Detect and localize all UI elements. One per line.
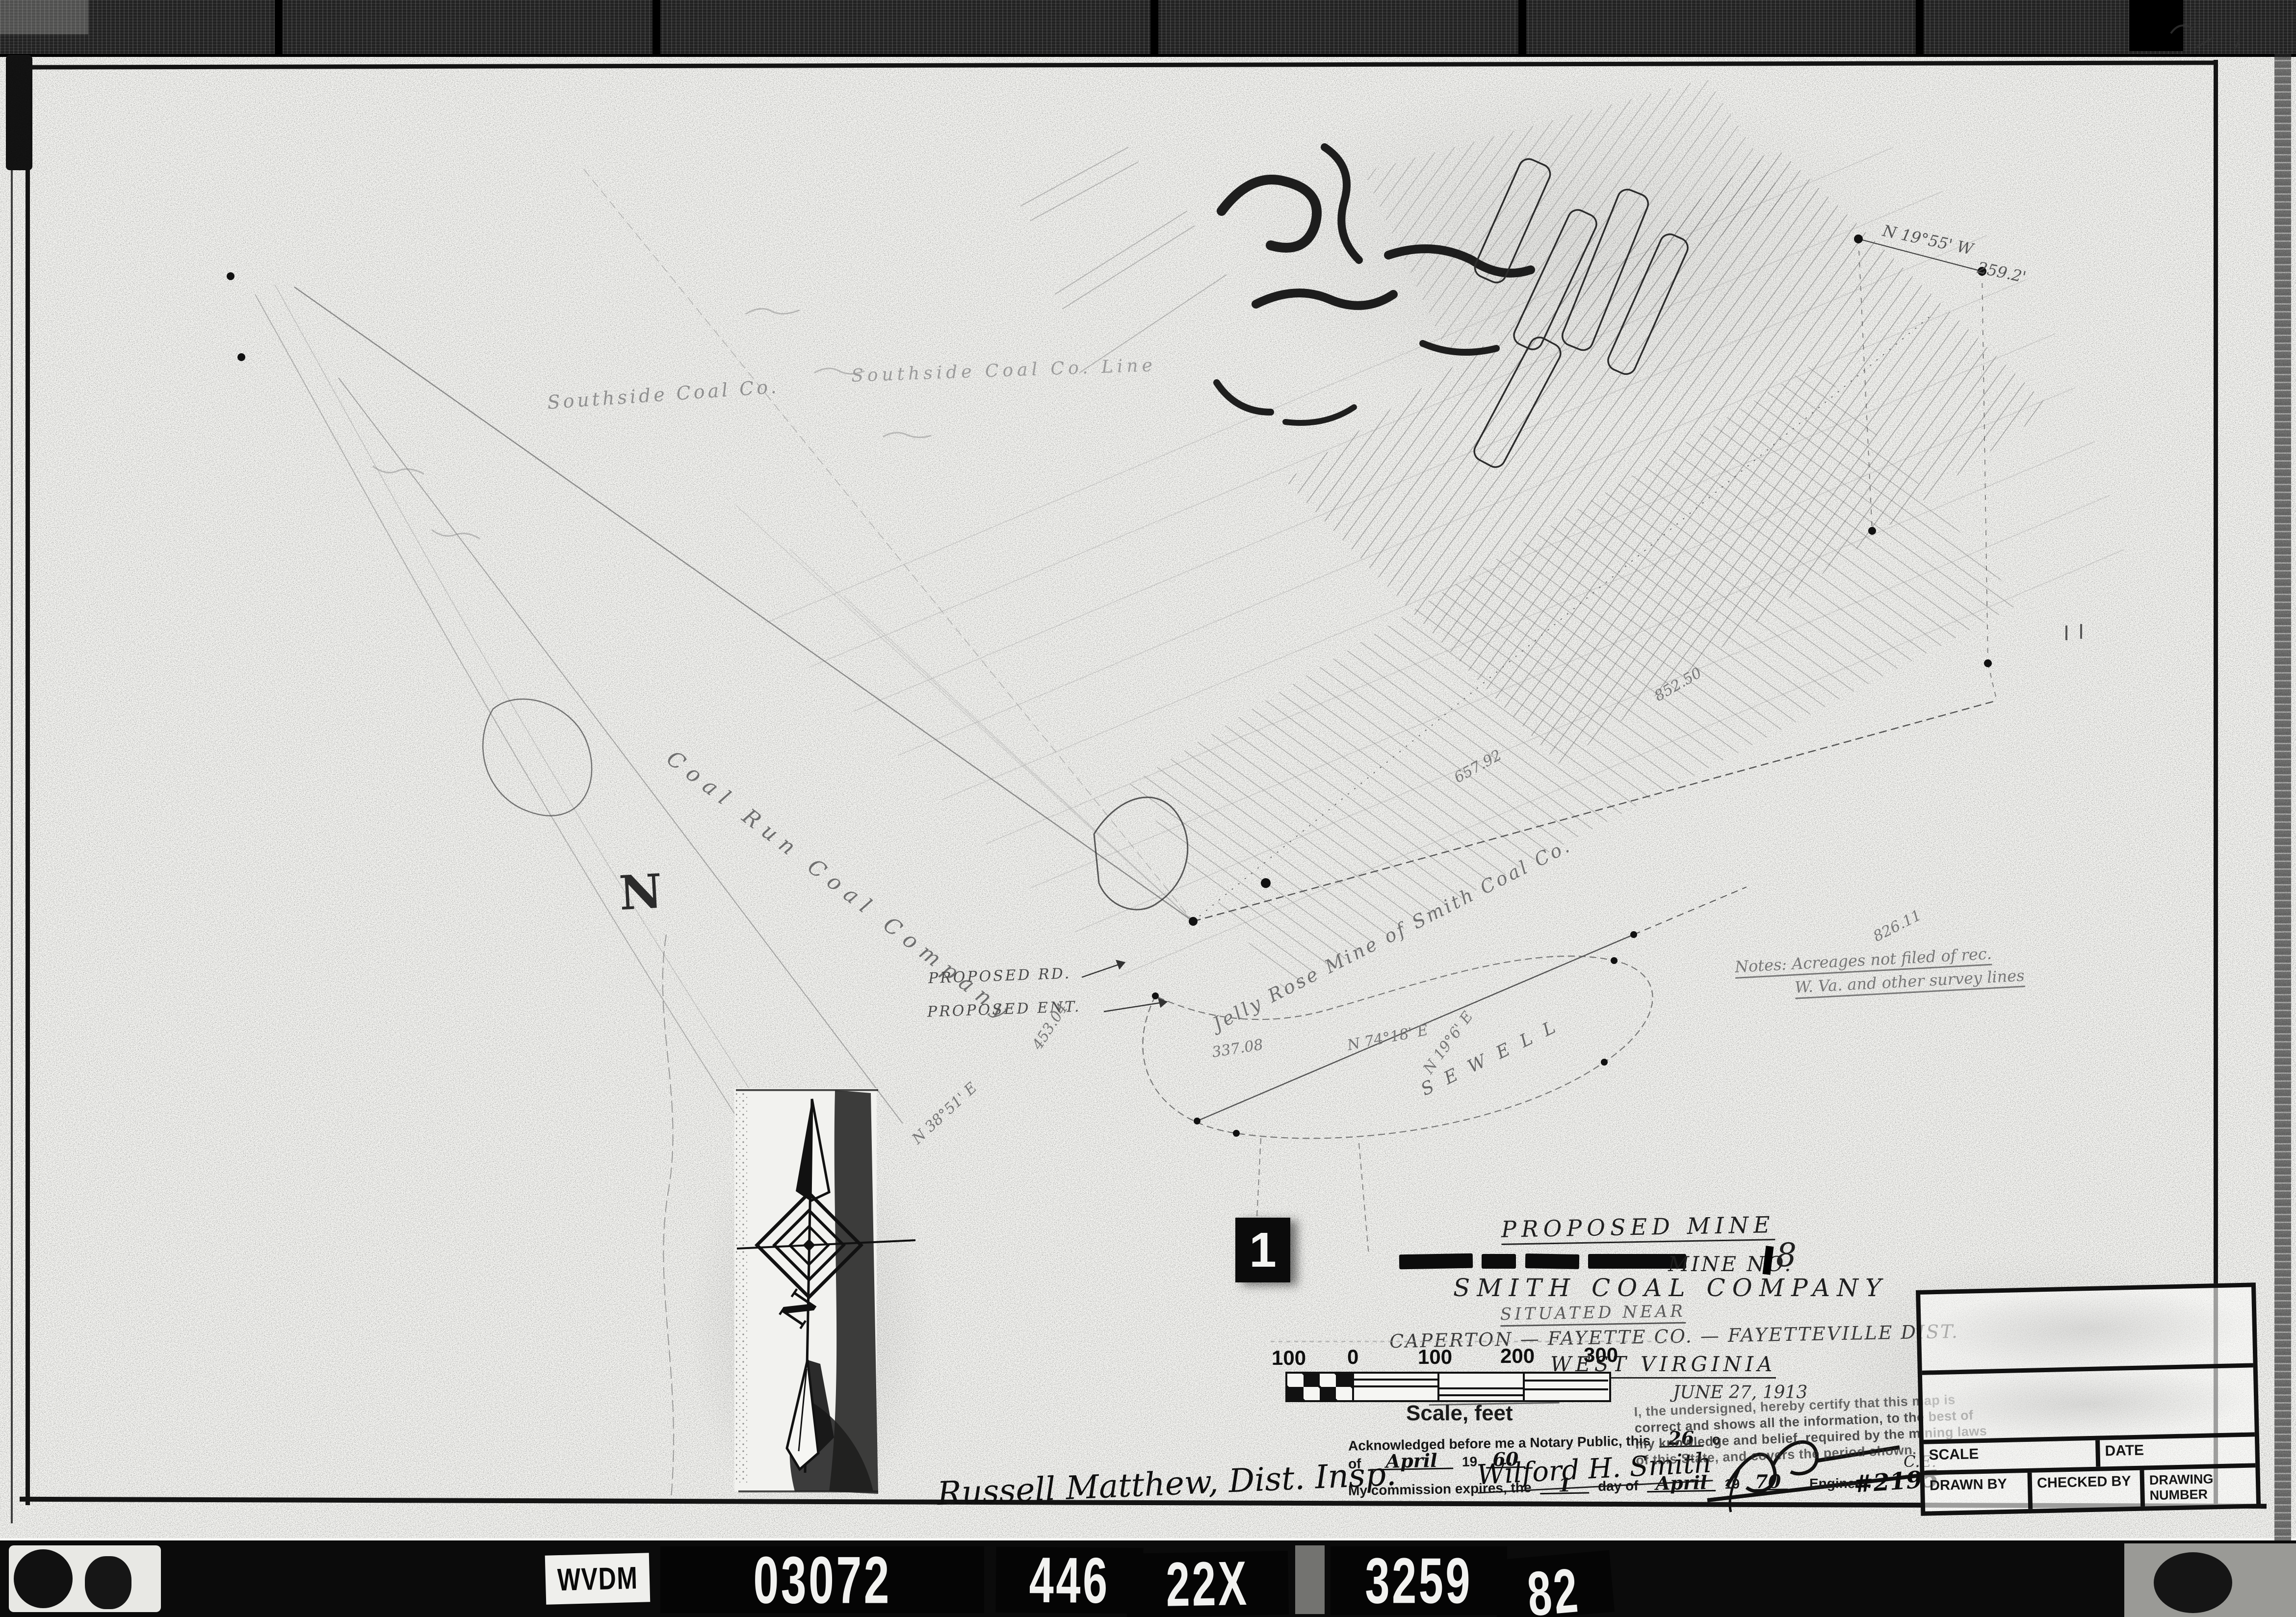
scale-segment <box>1525 1374 1608 1400</box>
crossed-out-name <box>1399 1254 1693 1269</box>
film-number-tag-5: 82 <box>1492 1550 1615 1617</box>
film-bottom-strip: WVDM 03072 446 22X 3259 82 <box>0 1540 2296 1617</box>
map-title-heading: PROPOSED MINE <box>1501 1211 1775 1245</box>
title-block-byline-row: DRAWN BY CHECKED BY DRAWING NUMBER <box>1925 1467 2257 1511</box>
scale-tick-100: 100 <box>1418 1345 1452 1369</box>
frame-number: 1 <box>1249 1222 1277 1278</box>
film-reel-mark <box>85 1556 131 1609</box>
company-name: SMITH COAL COMPANY <box>1453 1274 1888 1302</box>
film-end-patch-left <box>9 1545 161 1612</box>
scale-caption: Scale, feet <box>1406 1401 1513 1426</box>
agency-label: WVDM <box>557 1560 638 1598</box>
film-reel-mark <box>2154 1552 2232 1613</box>
film-gap <box>1295 1545 1325 1614</box>
scale-segment <box>1354 1374 1439 1400</box>
title-block: SCALE DATE DRAWN BY CHECKED BY DRAWING N… <box>1916 1282 2261 1516</box>
film-number-tag-3: 22X <box>1126 1551 1289 1617</box>
film-end-patch-right <box>2124 1543 2296 1617</box>
scale-segment <box>1439 1374 1525 1400</box>
drawing-number-cell: DRAWING NUMBER <box>2144 1467 2256 1506</box>
scale-tick-0: 0 <box>1347 1345 1358 1369</box>
exp-month-fill: April <box>1647 1475 1716 1492</box>
film-number-tag-1: 03072 <box>660 1546 984 1613</box>
situated-near: SITUATED NEAR <box>1500 1302 1686 1327</box>
scale-cell: SCALE <box>1924 1440 2100 1471</box>
scale-tick-200: 200 <box>1500 1344 1535 1368</box>
film-number: 82 <box>1525 1554 1583 1617</box>
scale-tick-300: 300 <box>1584 1343 1618 1367</box>
film-agency-tag: WVDM <box>545 1553 651 1605</box>
date-cell: DATE <box>2100 1436 2255 1466</box>
mine-no-label: MINE NO. <box>1668 1252 1793 1276</box>
title-block-empty-row-2 <box>1922 1367 2255 1444</box>
title-block-empty-row-1 <box>1920 1287 2253 1375</box>
year-prefix2: 19 <box>1724 1476 1740 1492</box>
scale-tick-100L: 100 <box>1272 1346 1306 1370</box>
film-number-tag-4: 3259 <box>1331 1546 1507 1615</box>
scanned-mine-map-page: Southside Coal Co. Line Southside Coal C… <box>0 0 2296 1617</box>
checked-by-cell: CHECKED BY <box>2032 1470 2145 1509</box>
film-frame-number-tag: 1 <box>1235 1218 1290 1282</box>
graphic-scale-bar <box>1285 1372 1611 1402</box>
scale-checker-section <box>1287 1374 1354 1400</box>
film-number: 22X <box>1165 1547 1249 1617</box>
faint-rule <box>1271 1341 1678 1342</box>
film-number: 3259 <box>1365 1543 1473 1617</box>
day-of-label: day of <box>1598 1478 1639 1494</box>
mine-no-value: 8 <box>1776 1236 1797 1274</box>
drawn-by-cell: DRAWN BY <box>1925 1473 2033 1512</box>
film-number: 03072 <box>753 1541 891 1617</box>
year-prefix: 19 <box>1462 1454 1478 1470</box>
exp-day-fill: 1 <box>1540 1477 1590 1494</box>
exp-year-fill: 70 <box>1748 1474 1788 1490</box>
north-letter-map: N <box>618 863 664 921</box>
film-number-tag-2: 446 <box>995 1547 1143 1614</box>
film-reel-mark <box>14 1549 73 1608</box>
film-number: 446 <box>1029 1543 1110 1617</box>
